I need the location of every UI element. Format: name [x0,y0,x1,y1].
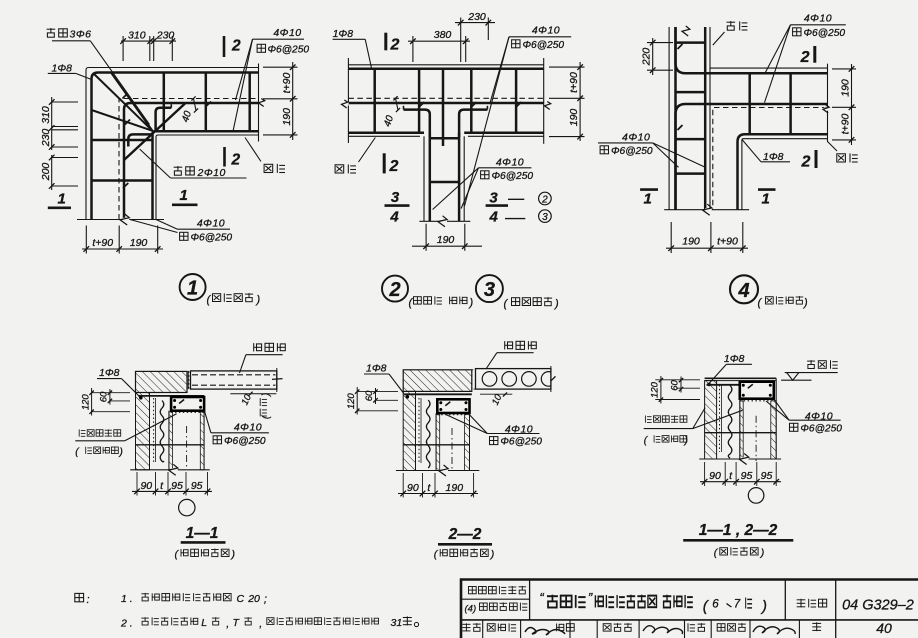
svg-text:40: 40 [180,109,194,123]
svg-text:380: 380 [434,29,452,41]
svg-text:1 .: 1 . [121,593,133,605]
svg-text:2—2: 2—2 [448,526,482,543]
svg-text:): ) [468,297,474,309]
svg-text:t: t [729,470,733,482]
svg-text:Φ6@250: Φ6@250 [800,423,842,434]
svg-text:2: 2 [390,37,400,54]
svg-text:31: 31 [391,617,403,629]
svg-text:1Φ8: 1Φ8 [99,367,120,379]
svg-text:40: 40 [876,620,892,636]
svg-text:(: ( [703,598,710,615]
svg-text:190: 190 [446,482,464,494]
svg-text:60: 60 [99,391,110,402]
svg-text:120: 120 [346,393,357,410]
svg-text:95: 95 [171,480,183,492]
svg-text:190: 190 [682,236,700,248]
svg-text:40: 40 [382,114,396,128]
svg-text:(: ( [434,549,439,561]
svg-text:(: ( [207,294,212,306]
svg-text:2: 2 [231,38,241,55]
svg-text:4: 4 [389,209,399,226]
svg-text:7: 7 [734,599,741,611]
svg-text:Φ6@250: Φ6@250 [268,44,310,55]
svg-text:4Φ10: 4Φ10 [496,157,524,169]
svg-text:): ) [261,415,272,419]
svg-text:(: ( [758,297,763,309]
svg-text:220: 220 [641,48,653,67]
svg-text:2Φ10: 2Φ10 [197,167,226,179]
svg-text:04 G329–2: 04 G329–2 [842,598,914,614]
svg-text:t+90: t+90 [717,236,738,248]
svg-text:2: 2 [801,154,811,171]
svg-text:190: 190 [130,237,148,249]
svg-text:1: 1 [180,187,188,204]
svg-text:1: 1 [762,191,770,208]
svg-text:230: 230 [467,11,486,23]
svg-text:3Φ6: 3Φ6 [70,28,92,40]
svg-text:4Φ10: 4Φ10 [805,411,833,423]
svg-text:): ) [230,549,236,561]
svg-text:t+90: t+90 [281,72,293,93]
svg-text:4Φ10: 4Φ10 [273,27,301,39]
svg-text:6: 6 [712,599,719,611]
svg-text:95: 95 [191,480,203,492]
svg-text:1: 1 [644,191,652,208]
svg-text:1Φ8: 1Φ8 [763,151,784,163]
svg-text:4: 4 [737,280,749,302]
svg-text:): ) [489,549,495,561]
svg-text:3: 3 [484,279,495,301]
svg-text:2: 2 [800,49,810,66]
svg-text:1Φ8: 1Φ8 [724,353,745,365]
svg-text:Φ6@250: Φ6@250 [492,171,534,182]
svg-text:2 .: 2 . [120,617,133,629]
svg-text:200: 200 [40,163,52,182]
svg-text:(: ( [175,549,180,561]
svg-text:4Φ10: 4Φ10 [197,218,225,230]
svg-text:“: “ [539,590,544,605]
svg-text:t+90: t+90 [568,72,580,93]
svg-text:4Φ10: 4Φ10 [804,13,832,25]
svg-text:): ) [802,297,808,309]
svg-text:4Φ10: 4Φ10 [622,132,650,144]
svg-text:t+90: t+90 [840,113,852,134]
svg-text:(: ( [714,547,719,559]
svg-text:(4): (4) [465,604,477,615]
svg-text:): ) [553,298,559,310]
svg-text:): ) [760,598,767,615]
svg-text:Φ6@250: Φ6@250 [500,437,542,448]
svg-text::: : [87,594,90,606]
svg-text:): ) [255,294,261,306]
svg-text:): ) [684,436,688,447]
svg-text:1—1: 1—1 [186,525,219,542]
svg-text:C: C [237,593,245,605]
svg-text:(: ( [644,436,649,447]
svg-text:Φ6@250: Φ6@250 [523,40,565,51]
svg-text:190: 190 [281,108,293,126]
svg-text:1Φ8: 1Φ8 [366,363,387,375]
svg-text:1—1 , 2—2: 1—1 , 2—2 [699,522,778,539]
svg-text:;: ; [264,594,267,606]
svg-text:310: 310 [40,106,52,124]
svg-text:120: 120 [650,381,661,398]
svg-text:4Φ10: 4Φ10 [532,25,560,37]
svg-text:3: 3 [489,189,498,206]
svg-text:): ) [119,447,123,458]
svg-text:2: 2 [231,152,241,169]
svg-text:t: t [160,480,164,492]
svg-text:(: ( [75,447,80,458]
svg-text:190: 190 [437,234,455,246]
svg-text:‚: ‚ [226,618,229,630]
svg-text:2: 2 [389,158,399,175]
svg-text:120: 120 [80,394,91,411]
svg-text:230: 230 [40,129,52,148]
svg-text:1: 1 [187,278,198,300]
svg-text:L: L [201,617,207,629]
svg-text:4Φ10: 4Φ10 [234,422,262,434]
svg-text:20: 20 [247,593,260,605]
svg-text:1: 1 [58,191,66,208]
svg-text:t+90: t+90 [92,237,113,249]
svg-text:3: 3 [542,212,548,223]
svg-text:10: 10 [240,392,255,407]
svg-text:1Φ8: 1Φ8 [333,28,354,40]
svg-text:4: 4 [489,209,499,226]
svg-text:190: 190 [568,109,580,127]
svg-text:T: T [233,617,241,629]
svg-text:95: 95 [761,470,773,482]
svg-text:2: 2 [541,194,548,205]
svg-text:”: ” [588,590,593,605]
svg-text:‚: ‚ [259,618,262,630]
svg-text:60: 60 [364,390,375,401]
svg-text:2: 2 [388,279,400,301]
svg-text:Φ6@250: Φ6@250 [611,146,653,157]
svg-text:190: 190 [840,79,852,97]
svg-text:(: ( [409,297,414,309]
svg-text:230: 230 [156,30,175,42]
svg-text:(: ( [504,298,509,310]
svg-text:): ) [759,547,765,559]
svg-text:95: 95 [741,470,753,482]
svg-text:3: 3 [391,189,400,206]
svg-text:90: 90 [140,480,152,492]
svg-text:Φ6@250: Φ6@250 [191,232,233,243]
svg-text:90: 90 [407,482,419,494]
svg-text:Φ6@250: Φ6@250 [224,436,266,447]
svg-text:90: 90 [709,470,721,482]
svg-text:t: t [427,482,431,494]
svg-text:1Φ8: 1Φ8 [52,63,73,75]
svg-text:310: 310 [128,30,146,42]
svg-text:60: 60 [670,380,681,391]
svg-text:(: ( [261,393,272,398]
svg-text:Φ6@250: Φ6@250 [804,28,846,39]
